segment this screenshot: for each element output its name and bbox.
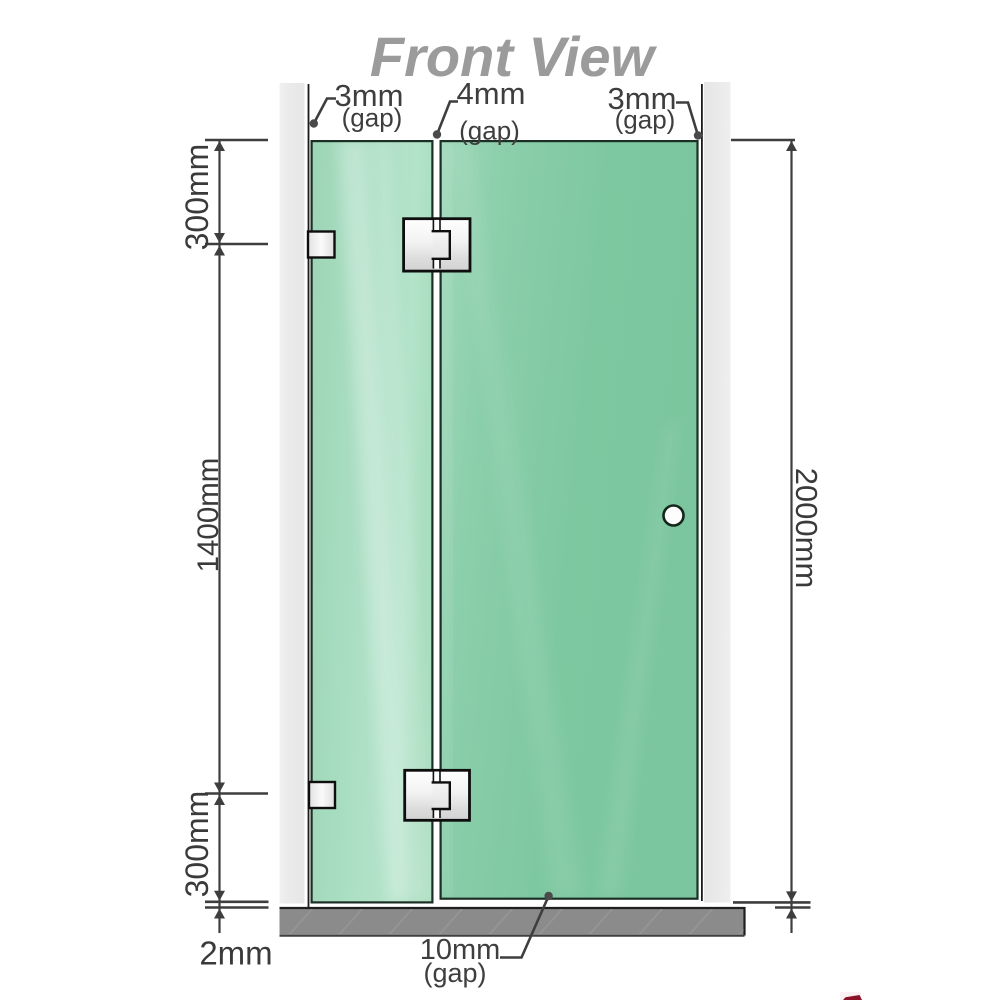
svg-text:2000mm: 2000mm bbox=[789, 468, 824, 589]
svg-text:300mm: 300mm bbox=[179, 791, 215, 898]
svg-text:(gap): (gap) bbox=[615, 105, 676, 135]
svg-text:1400mm: 1400mm bbox=[192, 458, 225, 573]
svg-text:(gap): (gap) bbox=[423, 958, 486, 988]
svg-text:(gap): (gap) bbox=[459, 116, 520, 146]
svg-text:2mm: 2mm bbox=[199, 935, 272, 972]
svg-text:300mm: 300mm bbox=[179, 144, 215, 251]
svg-text:4mm: 4mm bbox=[457, 76, 526, 111]
svg-text:(gap): (gap) bbox=[342, 103, 403, 133]
